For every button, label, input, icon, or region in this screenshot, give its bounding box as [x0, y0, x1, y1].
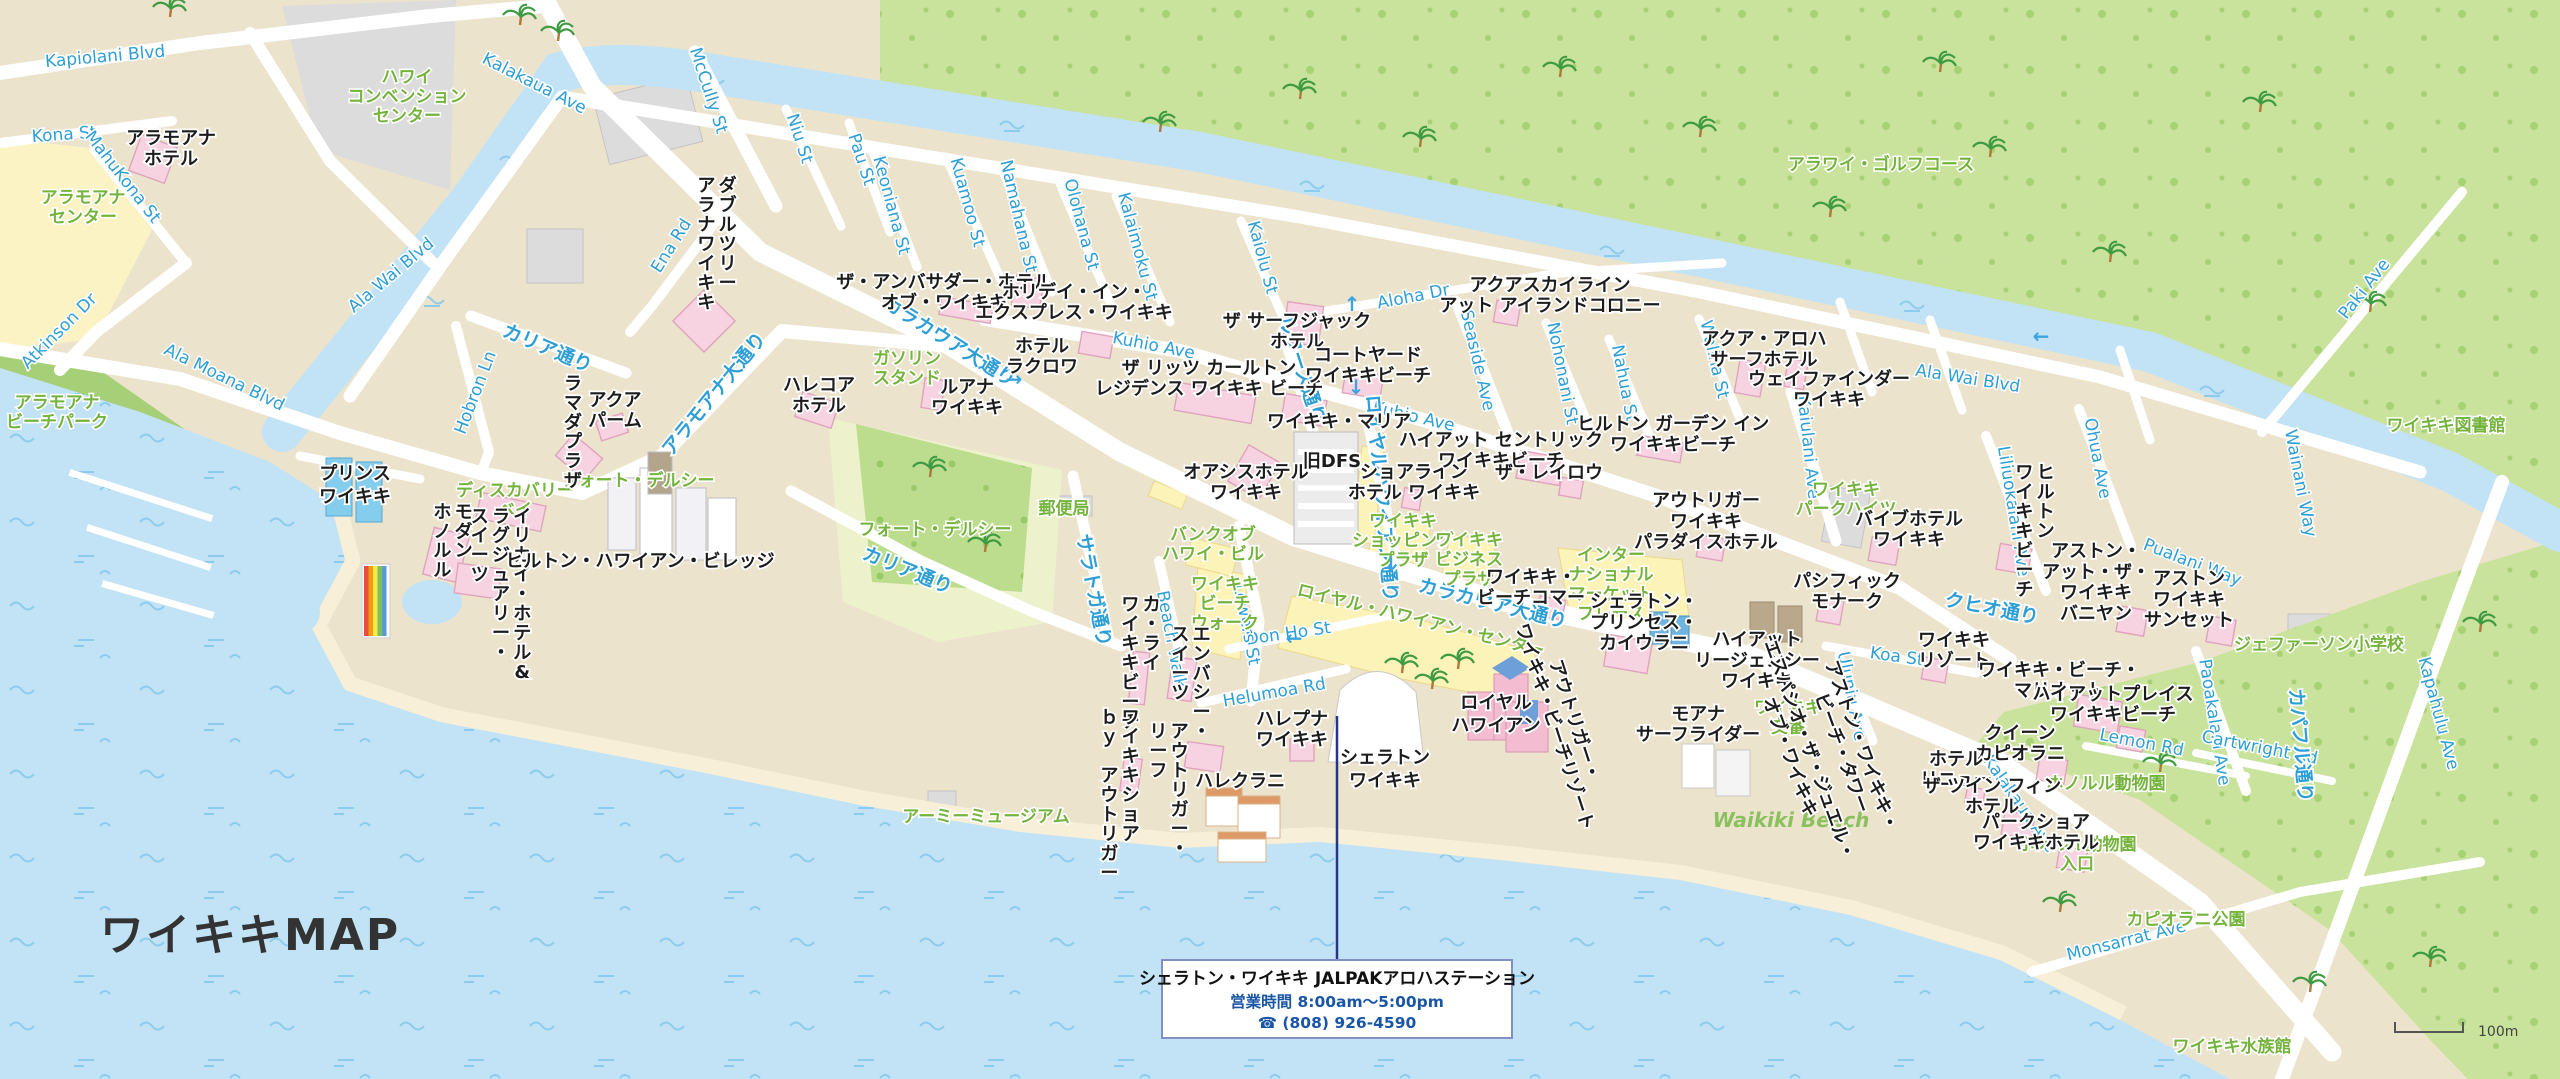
label-queen-kapiolani: クイーンカピオラニ [1975, 723, 2065, 765]
label-oneway-arrow-5: ← [1286, 626, 1303, 650]
svg-text:アウトリガー・: アウトリガー・ [1171, 722, 1189, 860]
label-holiday-inn-express: ホリデイ・イン・エクスプレス・ワイキキ [975, 281, 1172, 324]
label-hyatt-place-waikiki-beach: ハイアットプレイスワイキキビーチ [2032, 683, 2193, 726]
label-courtyard-waikiki-beach: コートヤードワイキキビーチ [1305, 345, 1431, 387]
label-luana-waikiki: ルアナワイキキ [931, 377, 1003, 419]
svg-text:アラナワイキキ: アラナワイキキ [697, 176, 715, 314]
waikiki-map: Kapiolani BlvdKona StMahuKona StAtkinson… [0, 0, 2560, 1079]
svg-text:スイーツ: スイーツ [1171, 624, 1189, 703]
label-fort-derussy-beach: フォート・デルシー [562, 470, 715, 491]
svg-text:ｂｙ アウトリガー: ｂｙ アウトリガー [1100, 707, 1118, 884]
label-oneway-arrow-3: ↓ [1348, 375, 1365, 399]
label-ala-wai-golf-course: アラワイ・ゴルフコース [1788, 154, 1974, 175]
label-oneway-arrow-4: ↓ [1383, 552, 1400, 576]
moana-surfrider-building [1682, 744, 1750, 796]
hotel-building-10 [1078, 331, 1113, 358]
page-title: ワイキキMAP [100, 910, 400, 961]
label-park-shore-waikiki: パークショアワイキキホテル [1973, 812, 2099, 854]
callout-hours: 営業時間 8:00am〜5:00pm [1230, 992, 1444, 1011]
label-waikiki-library: ワイキキ図書館 [2387, 415, 2506, 436]
svg-text:エンバシー・: エンバシー・ [1193, 624, 1211, 742]
label-old-dfs: 旧DFS [1303, 451, 1361, 472]
label-oneway-arrow-2: ↑ [1344, 292, 1361, 316]
callout-phone: ☎ (808) 926-4590 [1258, 1014, 1417, 1032]
svg-text:リーフ: リーフ [1149, 722, 1167, 782]
label-bank-of-hawaii: バンクオブハワイ・ビル [1162, 524, 1264, 565]
label-aqua-aloha-surf: アクア・アロハサーフホテル [1701, 329, 1826, 371]
svg-text:ダブルツリー: ダブルツリー [719, 175, 737, 294]
map-canvas: Kapiolani BlvdKona StMahuKona StAtkinson… [0, 0, 2560, 1079]
label-hilton-hawaiian-village: ヒルトン・ハワイアン・ビレッジ [505, 551, 774, 572]
label-aqua-skyline-island-colony: アクアスカイラインアット アイランドコロニー [1439, 275, 1660, 317]
svg-text:ラグジュアリー・: ラグジュアリー・ [492, 506, 510, 663]
label-oneway-arrow-1: → [1006, 367, 1023, 391]
label-ala-moana-center: アラモアナセンター [41, 188, 126, 228]
label-fort-derussy-park: フォート・デルシー [859, 519, 1012, 540]
label-waikiki-malia: ワイキキ・マリア [1267, 411, 1411, 432]
label-ritz-carlton-residences: ザ リッツ カールトンレジデンス ワイキキ ビーチ [1095, 358, 1323, 400]
gray-bldg-1 [527, 229, 583, 283]
label-kapiolani-park: カピオラニ公園 [2127, 910, 2246, 930]
label-halepuna-waikiki: ハレプナワイキキ [1256, 708, 1328, 751]
label-gas-station: ガソリンスタンド [873, 349, 941, 389]
label-aqua-palm: アクアパーム [588, 390, 641, 432]
label-laylow: ザ・レイロウ [1495, 462, 1603, 483]
label-ramada-plaza: ラマダプラザ [564, 373, 583, 491]
label-ala-moana-beach-park: アラモアナビーチパーク [6, 393, 108, 433]
svg-text:ヒルトン: ヒルトン [2037, 463, 2055, 542]
label-sheraton-princess-kaiulani: シェラトン・プリンセス・カイウラニ [1590, 592, 1698, 654]
svg-text:ホノルル: ホノルル [433, 502, 451, 581]
svg-text:ラマダプラザ: ラマダプラザ [564, 373, 583, 491]
scale-bar-label: 100m [2478, 1024, 2518, 1040]
svg-text:カ・ライ: カ・ライ [1143, 595, 1161, 674]
label-post-office: 郵便局 [1039, 498, 1090, 519]
hotel-building-29 [1184, 742, 1223, 773]
svg-text:スイーツ: スイーツ [471, 506, 489, 585]
svg-text:ワイキキビーチ: ワイキキビーチ [2015, 463, 2033, 601]
label-honolulu-zoo: ホノルル動物園 [2047, 773, 2166, 794]
label-halekulani: ハレクラニ [1195, 771, 1285, 792]
label-waikiki-beachcomber: ワイキキ・ビーチコマー [1477, 567, 1585, 609]
label-hale-koa-hotel: ハレコアホテル [783, 375, 855, 417]
hilton-lagoon [402, 580, 462, 624]
label-aston-waikiki-sunset: アストンワイキキサンセット [2144, 569, 2234, 631]
label-waikiki-aquarium: ワイキキ水族館 [2173, 1036, 2292, 1057]
callout-station-name: シェラトン・ワイキキ JALPAKアロハステーション [1139, 969, 1535, 989]
hilton-pond [244, 584, 320, 640]
label-oneway-arrow-6: ← [2033, 324, 2050, 348]
label-jefferson-elementary: ジェファーソン小学校 [2234, 634, 2405, 655]
svg-text:ワイキキショア: ワイキキショア [1122, 707, 1140, 845]
rainbow-tower [362, 564, 390, 638]
svg-text:イリカイ・ホテル&: イリカイ・ホテル& [513, 506, 531, 683]
label-army-museum: アーミーミュージアム [902, 807, 1069, 827]
